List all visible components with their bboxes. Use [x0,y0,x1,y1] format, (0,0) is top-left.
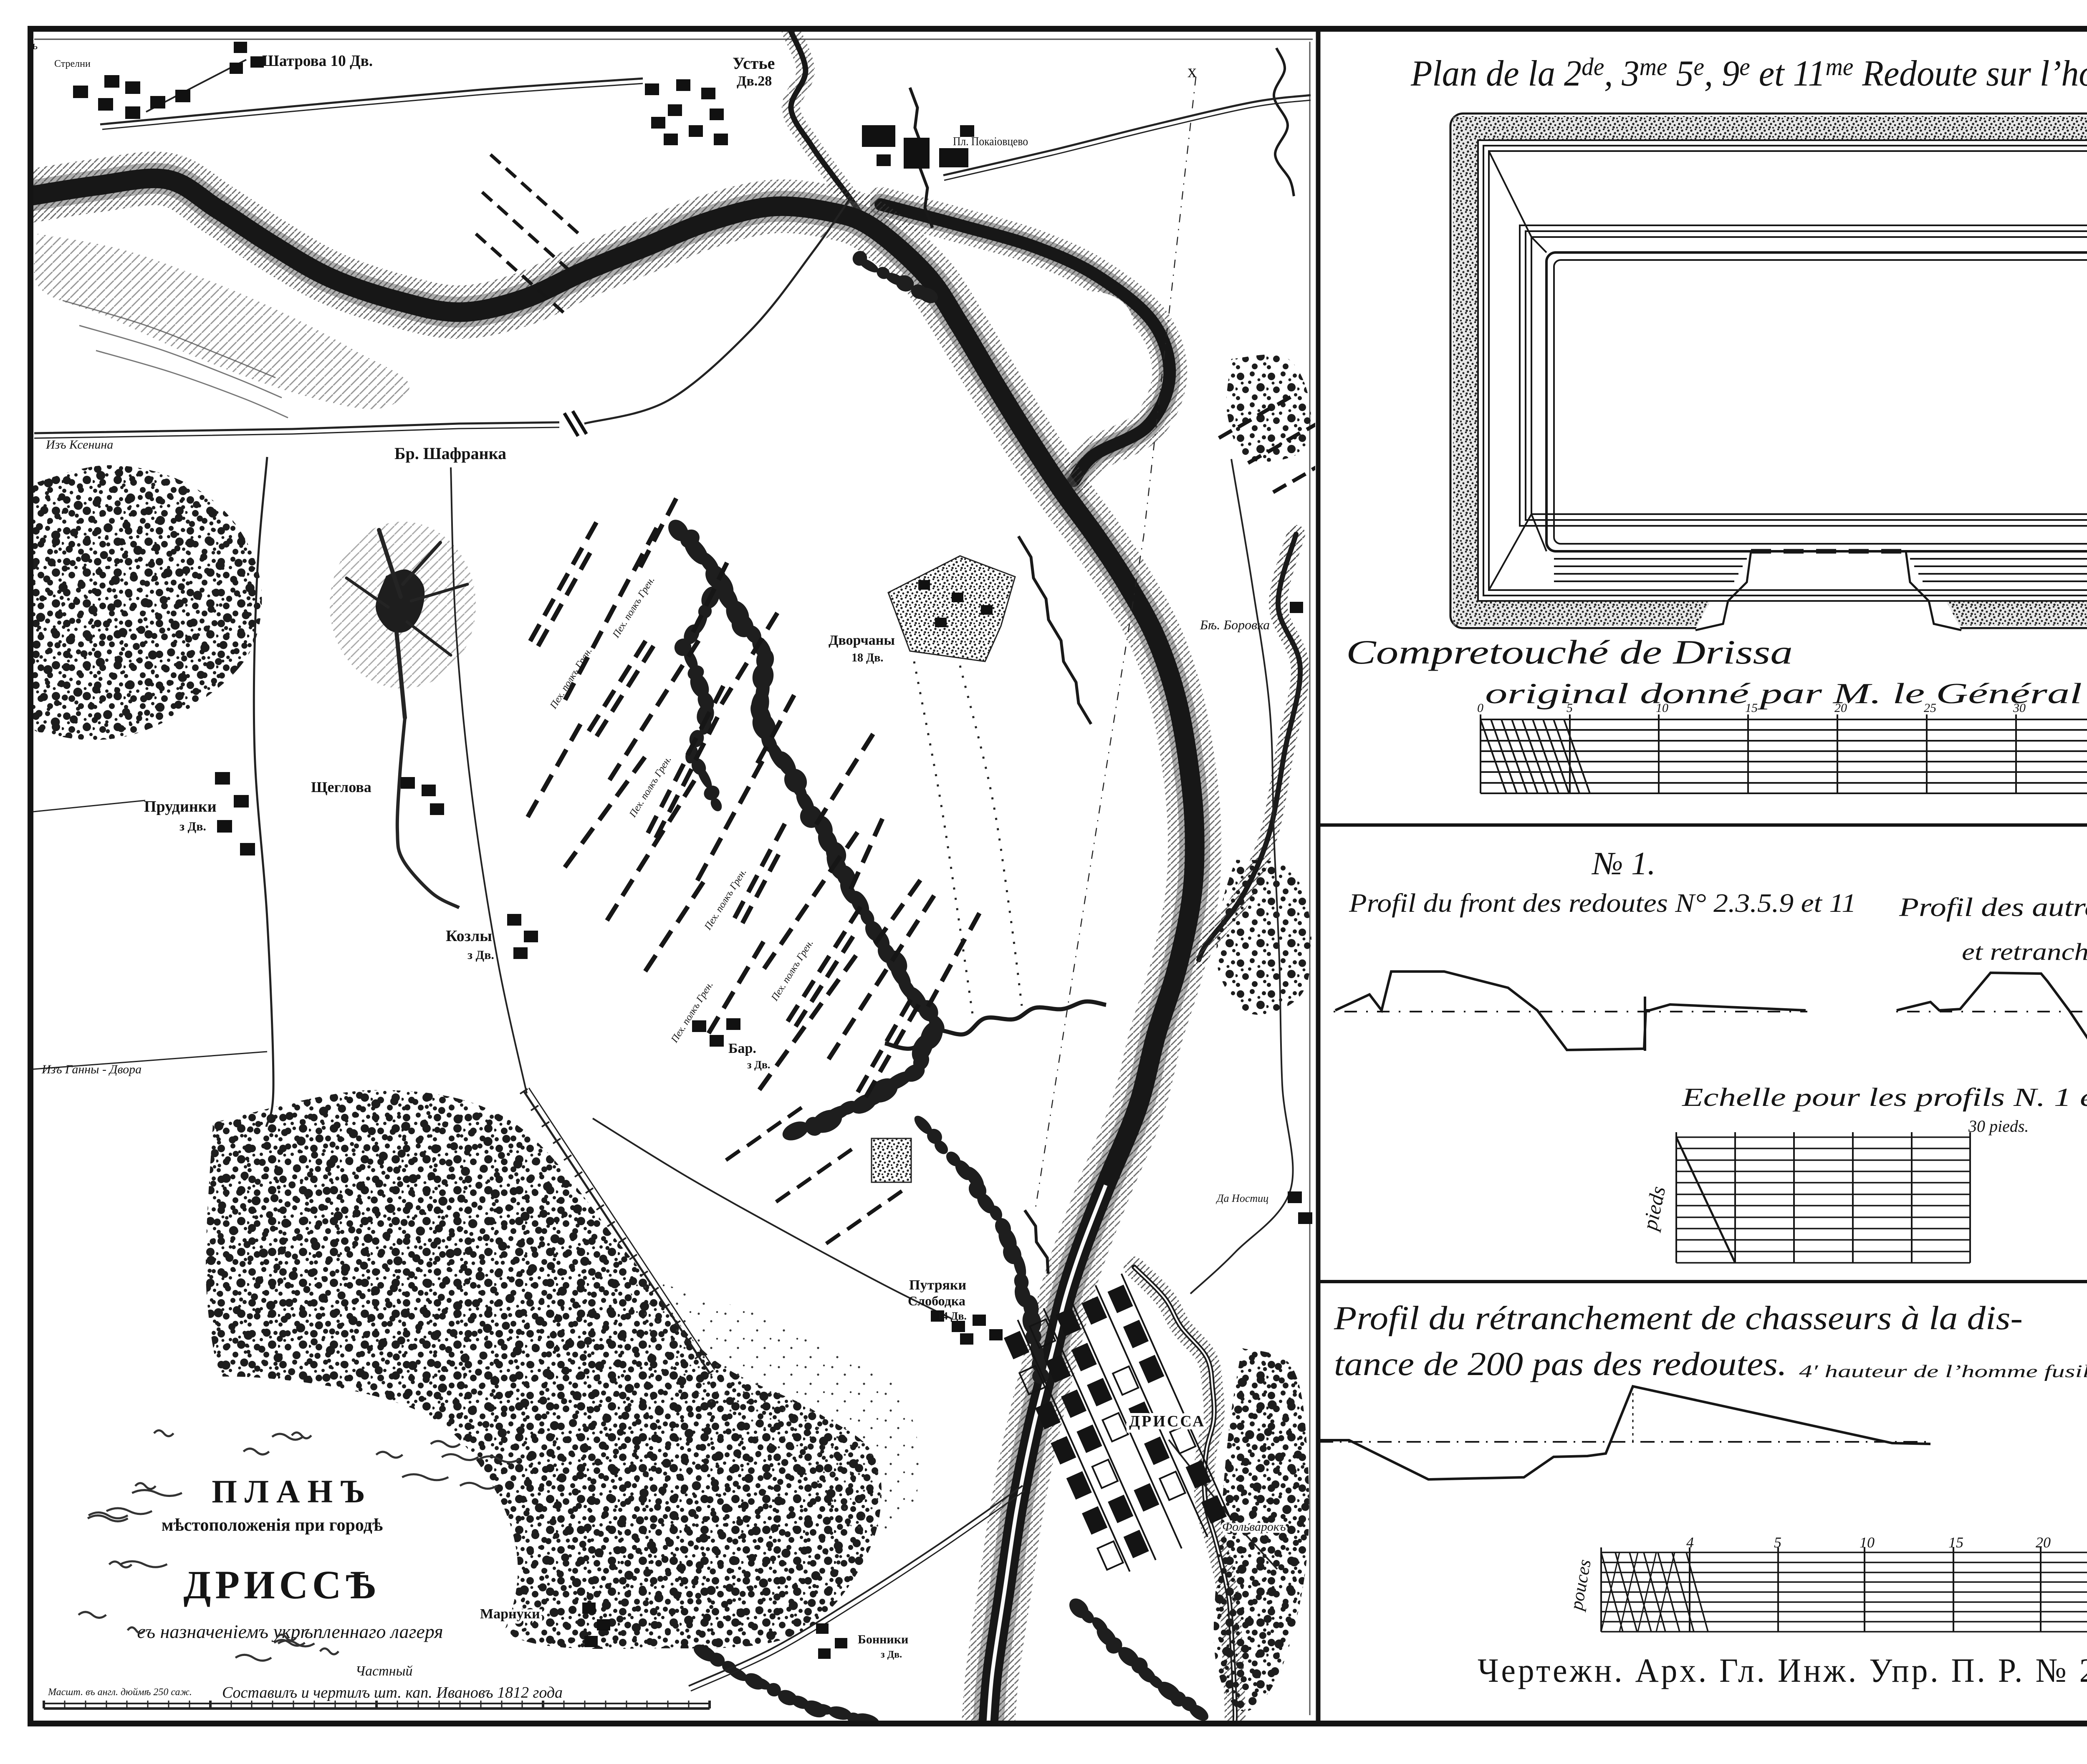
svg-text:Echelle pour les profils N.: Echelle pour les profils N. 1 et 2 [1682,1083,2087,1112]
svg-text:Бар.: Бар. [728,1041,756,1056]
svg-text:Стрелни: Стрелни [54,58,91,69]
svg-text:Фольварокъ: Фольварокъ [1222,1520,1286,1534]
svg-text:4′ hauteur de l’homme fusil qu: 4′ hauteur de l’homme fusil quand l’homm… [1799,1362,2087,1381]
svg-text:Прудинки: Прудинки [144,798,217,815]
svg-text:Частный: Частный [356,1663,413,1679]
svg-text:14 Дв.: 14 Дв. [937,1310,967,1322]
svg-text:et retranchement: et retranchement [1962,938,2087,965]
svg-text:Бонники: Бонники [858,1633,908,1646]
svg-text:Марнуки: Марнуки [480,1606,540,1622]
svg-text:ДРИССА: ДРИССА [1129,1413,1205,1430]
svg-text:Изъ Ксенина: Изъ Ксенина [45,438,113,452]
svg-text:Шатрова 10 Дв.: Шатрова 10 Дв. [262,52,373,70]
svg-text:tance de 200 pas des redoutes.: tance de 200 pas des redoutes. [1334,1346,1787,1383]
svg-text:18 Дв.: 18 Дв. [851,651,883,664]
svg-text:20: 20 [2036,1534,2051,1551]
svg-text:30 pieds.: 30 pieds. [1968,1117,2029,1136]
svg-text:10: 10 [1860,1534,1875,1551]
svg-text:5: 5 [1774,1534,1781,1551]
svg-text:ДРИССѢ: ДРИССѢ [183,1562,380,1607]
svg-text:5: 5 [1567,701,1573,715]
svg-text:з Дв.: з Дв. [747,1059,770,1071]
svg-text:30: 30 [2013,701,2026,715]
svg-text:Козлы: Козлы [446,927,492,945]
svg-text:10: 10 [1656,701,1668,715]
svg-text:x: x [1188,61,1197,81]
svg-text:25: 25 [1924,701,1936,715]
svg-text:Щеглова: Щеглова [311,779,371,795]
svg-text:15: 15 [1745,701,1758,715]
svg-text:15: 15 [1948,1534,1963,1551]
svg-text:ПЛАНЪ: ПЛАНЪ [212,1473,372,1509]
svg-text:Дв.28: Дв.28 [737,73,772,89]
svg-text:Составилъ и чертилъ шт. кап. И: Составилъ и чертилъ шт. кап. Ивановъ 181… [222,1684,563,1701]
svg-text:Profil du rétranchement de cha: Profil du rétranchement de chasseurs à l… [1334,1300,2023,1337]
svg-text:Бр. Шафранка: Бр. Шафранка [394,444,506,463]
svg-text:Дворчаны: Дворчаны [829,633,895,648]
svg-text:Масшт. въ англ. дюймѣ 250: Масшт. въ англ. дюймѣ 250 саж. [48,1687,192,1698]
svg-text:original donné par M. le: original donné par M. le Général [1485,678,2082,710]
svg-text:Compretouché de Drissa: Compretouché de Drissa [1346,633,1793,671]
svg-text:Изъ Ганны - Двора: Изъ Ганны - Двора [41,1062,141,1076]
svg-text:20: 20 [1834,701,1847,715]
svg-text:Устье: Устье [733,54,775,73]
svg-text:съ назначеніемъ укрѣпленнаго л: съ назначеніемъ укрѣпленнаго лагеря [137,1621,443,1642]
svg-text:з Дв.: з Дв. [881,1649,902,1660]
svg-text:Profil des autres redoutes: Profil des autres redoutes [1899,892,2087,922]
svg-text:мѣстоположенія при городѣ: мѣстоположенія при городѣ [162,1516,383,1535]
svg-text:4: 4 [1686,1534,1694,1551]
svg-text:№ 1.: № 1. [1591,845,1656,881]
svg-text:Пл. Покаіовцево: Пл. Покаіовцево [953,135,1028,148]
svg-text:з Дв.: з Дв. [467,948,494,962]
svg-text:Путряки: Путряки [909,1277,966,1293]
svg-text:Бѣ. Боровка: Бѣ. Боровка [1200,617,1270,632]
svg-text:0: 0 [1477,701,1483,715]
svg-text:з Дв.: з Дв. [179,820,206,833]
svg-text:Profil du front des redoutes N: Profil du front des redoutes N° 2.3.5.9 … [1349,888,1856,918]
svg-text:Чертежн. Арх. Гл. Инж. Упр: Чертежн. Арх. Гл. Инж. Упр. П. Р. № 2800… [1478,1651,2087,1689]
svg-text:Да Ностиц: Да Ностиц [1215,1192,1268,1204]
svg-text:Слободка: Слободка [908,1293,965,1308]
